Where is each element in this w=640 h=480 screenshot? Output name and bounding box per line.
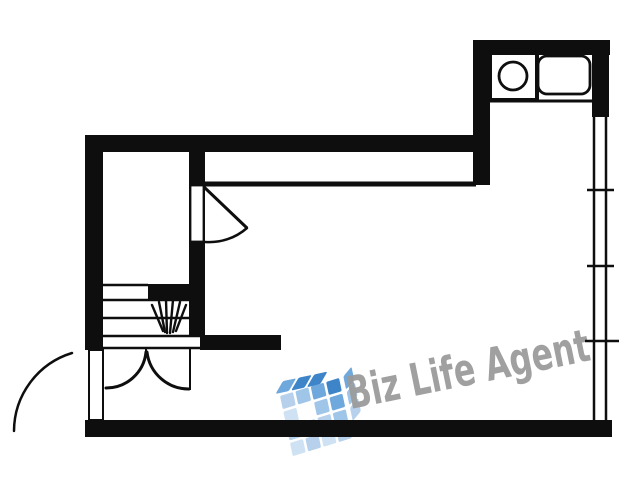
- entrance-door-leaf: [89, 350, 103, 420]
- kitchen-burner-circle: [499, 62, 527, 90]
- wall-left: [85, 135, 103, 350]
- wall-kitchen-right: [592, 40, 609, 117]
- interior-door-leaf: [191, 186, 204, 242]
- kitchen-sink: [538, 56, 590, 94]
- wall-top: [85, 135, 490, 152]
- floor-plan-drawing: [0, 0, 640, 480]
- double-door-left-swing-arc: [106, 352, 146, 388]
- entrance-door-swing-arc: [14, 353, 72, 431]
- wall-interior-vertical: [189, 152, 205, 337]
- double-door-right-swing-arc: [147, 352, 189, 389]
- wall-kitchen-left: [473, 40, 490, 185]
- interior-door-open-leaf: [204, 187, 247, 228]
- wall-bottom: [85, 420, 612, 437]
- stair-direction-hatch: [170, 300, 173, 333]
- floorplan-image: Biz Life Agent: [0, 0, 640, 480]
- wall-mid-horizontal: [200, 335, 281, 350]
- wall-stair-stub: [148, 284, 192, 300]
- stair-direction-hatch: [166, 300, 167, 333]
- interior-door-swing-arc: [205, 228, 247, 242]
